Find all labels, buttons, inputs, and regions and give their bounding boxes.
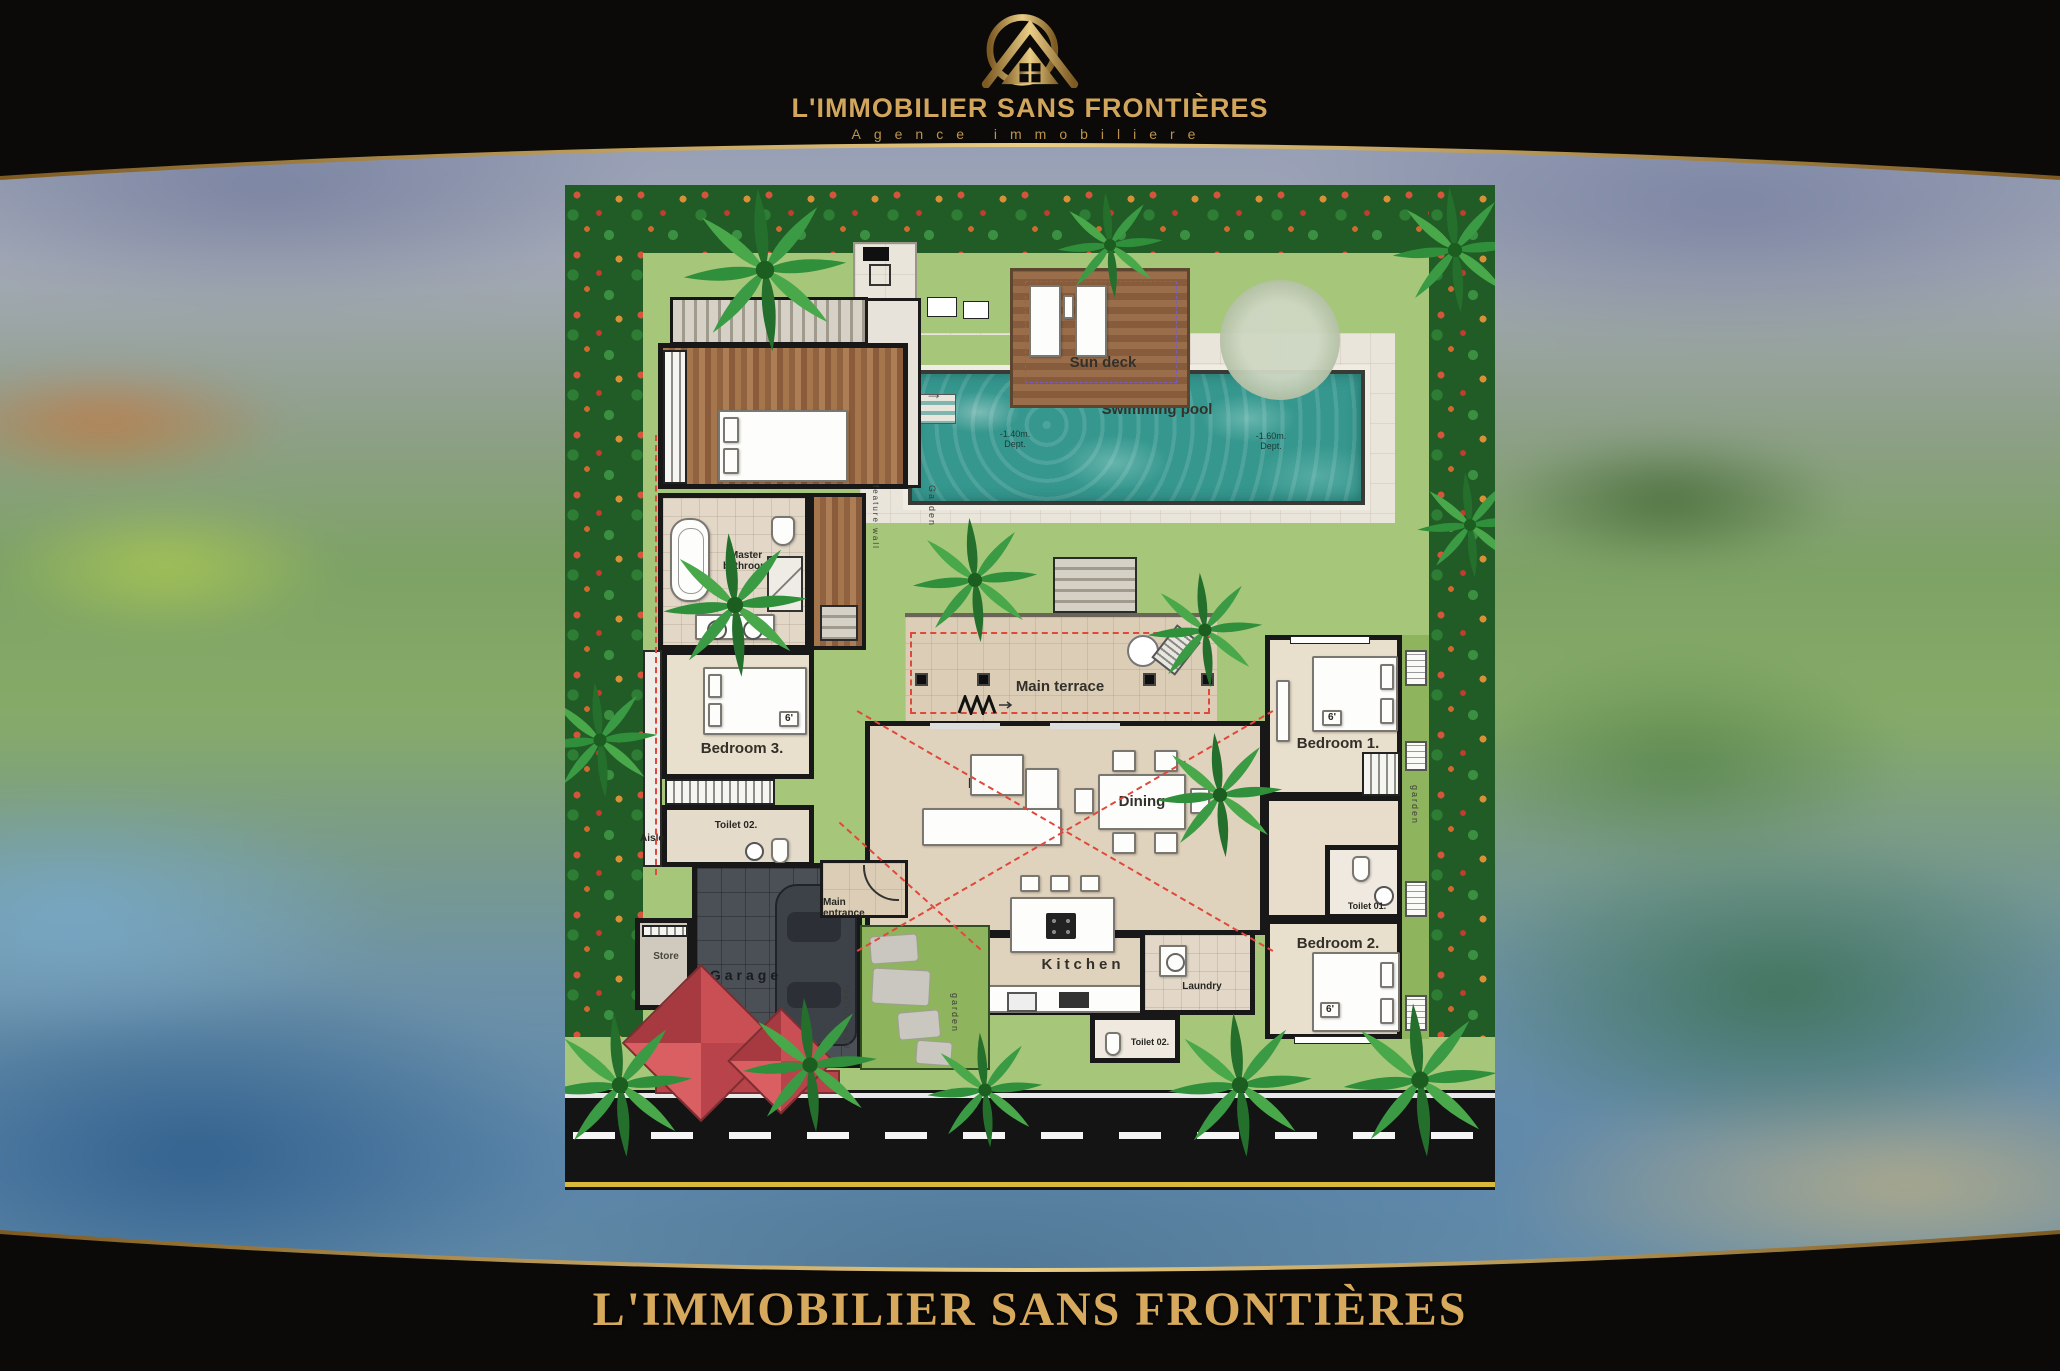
closet	[1362, 752, 1400, 796]
main-terrace-label: Main terrace	[995, 679, 1125, 696]
folding-door-icon	[957, 695, 1017, 715]
guide-line	[655, 435, 657, 875]
palm-icon	[925, 1030, 1045, 1150]
palm-icon	[1155, 730, 1285, 860]
sliding-door	[1050, 723, 1120, 729]
store-label: Store	[642, 951, 690, 962]
palm-icon	[1165, 1010, 1315, 1160]
palm-icon	[1340, 1000, 1495, 1160]
shower-wall	[863, 247, 889, 261]
pillow	[723, 417, 739, 443]
master-bed	[718, 410, 848, 482]
laundry-label: Laundry	[1167, 981, 1237, 992]
stepping-stone	[871, 968, 931, 1007]
bar-stool	[1050, 875, 1070, 892]
lawn-patch	[920, 335, 1010, 369]
closet	[665, 779, 775, 805]
bedroom-2-label: Bedroom 2.	[1274, 936, 1402, 953]
garden-pad	[963, 301, 989, 319]
room-laundry: Laundry	[1140, 930, 1255, 1015]
room-toilet-01: Toilet 01.	[1325, 845, 1402, 919]
hall-steps	[820, 605, 858, 641]
garden-pad	[927, 297, 957, 317]
palm-icon	[740, 995, 880, 1135]
palm-icon	[565, 680, 660, 800]
sliding-door	[930, 723, 1000, 729]
kitchen-counter	[987, 985, 1143, 1013]
washing-machine	[1159, 945, 1187, 977]
bed-size-label: 6'	[1322, 710, 1342, 726]
shower-tray	[869, 264, 891, 286]
aisle-label: Aisle	[631, 833, 673, 844]
dining-chair	[1074, 788, 1094, 814]
terrace-stairs	[1053, 557, 1137, 613]
kitchen-island	[1010, 897, 1115, 953]
toilet-02-label: Toilet 02.	[701, 820, 771, 831]
pool-depth-right-label: -1.60m. Dept.	[1248, 432, 1294, 452]
toilet-01-label: Toilet 01.	[1334, 902, 1400, 912]
sun-deck-label: Sun deck	[1023, 355, 1183, 372]
pillow	[1380, 962, 1394, 988]
dining-chair	[1112, 832, 1136, 854]
shelf	[642, 925, 688, 937]
pillow	[708, 703, 722, 727]
brand-tagline: Agence immobiliere	[0, 126, 2060, 142]
garden-right-label: garden	[1410, 785, 1420, 865]
room-master-bedroom	[658, 343, 908, 489]
main-entrance-label: Main entrance	[823, 897, 887, 919]
bed-size-label: 6'	[1320, 1002, 1340, 1018]
sofa	[922, 808, 1062, 846]
hedge-left	[565, 185, 643, 1037]
column	[915, 673, 928, 686]
pillow	[1380, 698, 1394, 724]
header: L'IMMOBILIER SANS FRONTIÈRES Agence immo…	[0, 6, 2060, 142]
bed-size-label: 6'	[779, 711, 799, 727]
washer-door	[1166, 953, 1185, 972]
palm-icon	[1415, 470, 1495, 580]
window	[1290, 636, 1370, 644]
ac-unit	[1405, 881, 1427, 917]
road-yellow-line	[565, 1182, 1495, 1187]
palm-icon	[680, 185, 850, 355]
pool-depth-left-label: -1.40m. Dept.	[992, 430, 1038, 450]
column	[977, 673, 990, 686]
master-wardrobe	[663, 350, 687, 484]
poster: Swimming pool -1.40m. Dept. -1.60m. Dept…	[0, 0, 2060, 1371]
kitchen-label: Kitchen	[1013, 957, 1153, 974]
palm-icon	[565, 1010, 695, 1160]
toilet	[1352, 856, 1370, 882]
palm-icon	[910, 515, 1040, 645]
dining-chair	[1112, 750, 1136, 772]
bar-stool	[1080, 875, 1100, 892]
brand-title: L'IMMOBILIER SANS FRONTIÈRES	[0, 93, 2060, 124]
footer-title: L'IMMOBILIER SANS FRONTIÈRES	[0, 1282, 2060, 1337]
feature-wall-label: feature wall	[871, 485, 880, 571]
pillow	[723, 448, 739, 474]
bar-stool	[1020, 875, 1040, 892]
floor-plan: Swimming pool -1.40m. Dept. -1.60m. Dept…	[565, 185, 1495, 1190]
sink	[745, 842, 764, 861]
tree	[1220, 280, 1340, 400]
hob	[1046, 913, 1076, 939]
palm-icon	[660, 530, 810, 680]
room-toilet-02: Toilet 02.	[662, 805, 814, 867]
palm-icon	[1390, 185, 1495, 315]
kitchen-sink	[1007, 992, 1037, 1012]
house-logo-icon	[971, 6, 1089, 88]
palm-icon	[1055, 190, 1165, 300]
ac-unit	[1405, 650, 1427, 686]
stairs-arrow-icon: →	[925, 383, 945, 403]
hallway	[810, 493, 866, 650]
bedroom-3-label: Bedroom 3.	[677, 741, 807, 758]
ac-unit	[1405, 741, 1427, 771]
bedroom-1-label: Bedroom 1.	[1274, 736, 1402, 753]
pillow	[1380, 664, 1394, 690]
palm-icon	[1145, 570, 1265, 690]
room-bedroom-1: 6' Bedroom 1.	[1265, 635, 1402, 797]
toilet	[771, 838, 789, 864]
cooktop	[1059, 992, 1089, 1008]
